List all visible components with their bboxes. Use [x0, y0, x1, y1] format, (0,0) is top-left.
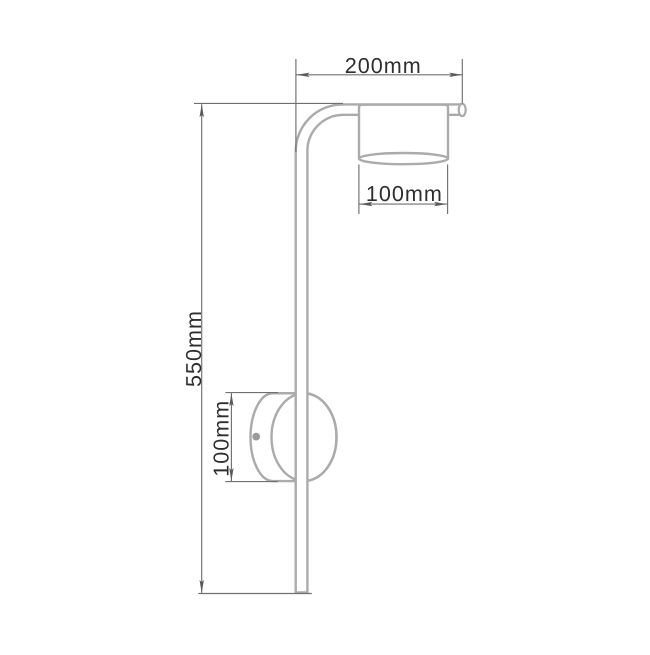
svg-text:100mm: 100mm — [208, 400, 233, 477]
svg-text:200mm: 200mm — [345, 53, 422, 78]
svg-text:100mm: 100mm — [366, 181, 443, 206]
svg-text:550mm: 550mm — [181, 310, 206, 387]
